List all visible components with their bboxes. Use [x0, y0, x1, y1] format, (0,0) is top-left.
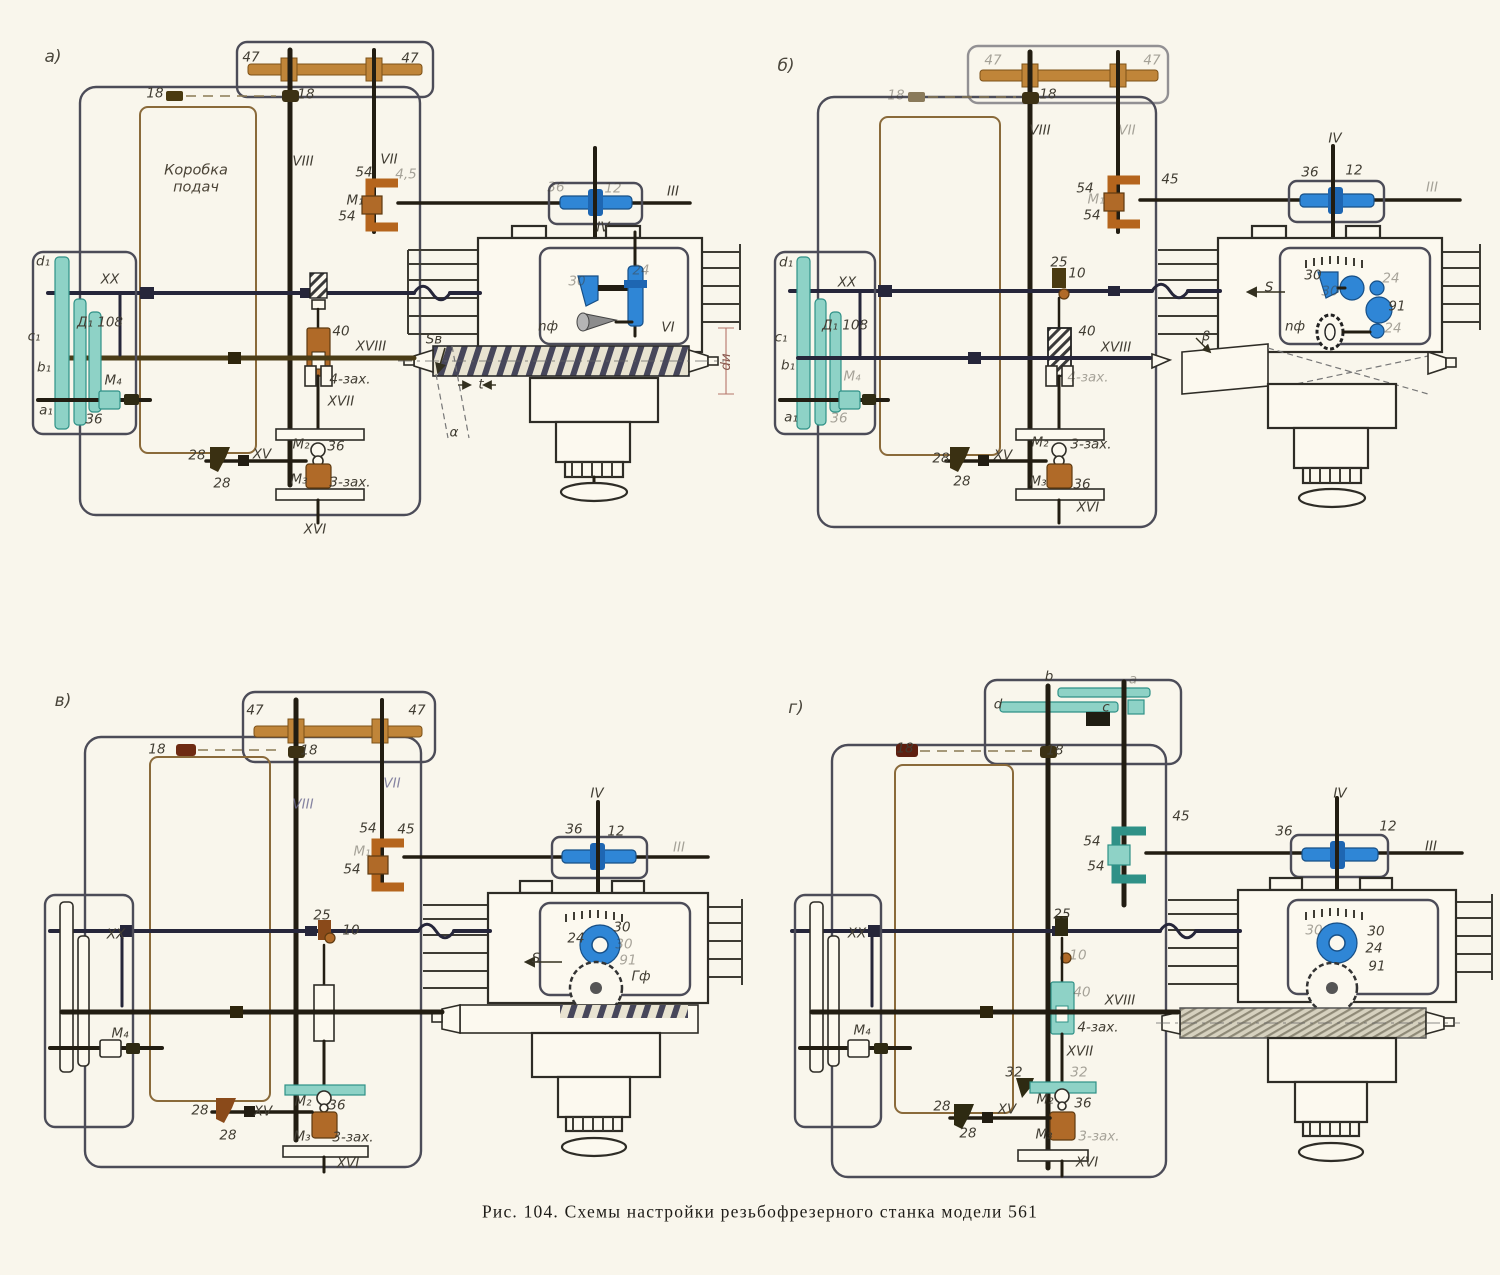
part-label: 3-зах. [1078, 1129, 1119, 1145]
part-label: VII [383, 776, 400, 792]
part-label: 30 [1367, 924, 1384, 940]
part-label: S [532, 951, 541, 967]
part-label: 36 [85, 412, 102, 428]
part-label: 10 [1068, 266, 1085, 282]
part-label: c₁ [28, 329, 41, 345]
part-label: 36 [830, 411, 847, 427]
part-label: M₄ [843, 369, 860, 385]
part-label: 28 [953, 474, 970, 490]
part-label: 24 [567, 931, 584, 947]
part-label: VIII [1029, 123, 1050, 139]
part-label: XVI [304, 522, 326, 538]
part-label: 30 [1305, 923, 1322, 939]
part-label: VIII [292, 154, 313, 170]
part-label: 32 [1070, 1065, 1087, 1081]
part-label: M₄ [111, 1026, 128, 1042]
part-label: 45 [397, 822, 414, 838]
part-label: 24 [1382, 271, 1399, 287]
part-label: M₄ [104, 373, 121, 389]
part-label: III [667, 184, 679, 200]
part-label: M₃ [1035, 1127, 1052, 1143]
part-label: M₃ [293, 1129, 310, 1145]
part-label: c [1102, 700, 1109, 716]
part-label: б) [777, 57, 794, 77]
part-label: dи [719, 353, 735, 370]
part-label: 36 [327, 439, 344, 455]
part-label: 36 [328, 1098, 345, 1114]
part-label: 36 [1275, 824, 1292, 840]
part-label: M₁ [346, 193, 363, 209]
part-label: 40 [1078, 324, 1095, 340]
part-label: XVIII [356, 339, 386, 355]
part-label: 18 [146, 86, 163, 102]
part-label: IV [596, 220, 609, 236]
part-label: 54 [338, 209, 355, 225]
part-label: 30 [613, 920, 630, 936]
part-label: M₃ [290, 472, 307, 488]
part-label: M₂ [1036, 1092, 1053, 1108]
part-label: 10 [1069, 948, 1086, 964]
part-label: VIII [292, 797, 313, 813]
part-label: XVIII [1101, 340, 1131, 356]
part-label: M₂ [1031, 435, 1048, 451]
part-label: 25 [1050, 255, 1067, 271]
part-label: M₂ [294, 1094, 311, 1110]
part-label: XX [101, 272, 120, 288]
part-label: XX [107, 927, 126, 943]
part-label: c₁ [775, 330, 788, 346]
part-label: 12 [604, 181, 621, 197]
part-label: M₃ [1029, 474, 1046, 490]
part-label: 30 [568, 274, 585, 290]
part-label: 47 [1143, 53, 1160, 69]
part-label: 28 [959, 1126, 976, 1142]
part-label: Д₁ 108 [822, 318, 868, 334]
part-label: XVIII [1105, 993, 1135, 1009]
part-label: d₁ [779, 255, 793, 271]
part-label: b₁ [781, 358, 795, 374]
part-label: M₂ [292, 437, 309, 453]
part-label: 3-зах. [1070, 437, 1111, 453]
part-label: 36 [547, 180, 564, 196]
part-label: Д₁ 108 [77, 315, 123, 331]
part-label: 18 [887, 88, 904, 104]
part-label: 47 [408, 703, 425, 719]
part-label: 54 [355, 165, 372, 181]
part-label: XV [253, 447, 271, 463]
part-label: XVI [1076, 1155, 1098, 1171]
labels-overlay: а)47471818VIIIVII4,554M₁54Коробка подачI… [0, 0, 1500, 1275]
part-label: 28 [932, 451, 949, 467]
part-label: 47 [984, 53, 1001, 69]
part-label: 4-зах. [1077, 1020, 1118, 1036]
part-label: III [1425, 839, 1437, 855]
part-label: Коробка подач [164, 163, 228, 196]
part-label: XVII [1067, 1044, 1093, 1060]
part-label: г) [788, 699, 804, 719]
part-label: 54 [1083, 834, 1100, 850]
part-label: 47 [401, 51, 418, 67]
part-label: nф [538, 319, 558, 335]
part-label: XVII [328, 394, 354, 410]
part-label: 30 [1321, 284, 1338, 300]
part-label: 40 [1073, 985, 1090, 1001]
part-label: XV [994, 448, 1012, 464]
part-label: XVI [337, 1156, 359, 1172]
part-label: 18 [297, 87, 314, 103]
part-label: a [1129, 672, 1137, 688]
part-label: 18 [148, 742, 165, 758]
part-label: M₁ [1087, 192, 1104, 208]
part-label: nф [1285, 319, 1305, 335]
part-label: d [994, 697, 1003, 713]
part-label: d₁ [36, 254, 50, 270]
part-label: 36 [1301, 165, 1318, 181]
part-label: XV [254, 1104, 272, 1120]
part-label: a₁ [39, 403, 53, 419]
part-label: 47 [242, 50, 259, 66]
part-label: 45 [1161, 172, 1178, 188]
part-label: 28 [188, 448, 205, 464]
part-label: S [1265, 280, 1274, 296]
part-label: XV [998, 1102, 1016, 1118]
part-label: 4-зах. [1067, 370, 1108, 386]
part-label: IV [590, 786, 603, 802]
part-label: 10 [342, 923, 359, 939]
part-label: 28 [213, 476, 230, 492]
part-label: a₁ [784, 410, 798, 426]
part-label: 3-зах. [329, 475, 370, 491]
part-label: 4-зах. [329, 372, 370, 388]
part-label: 24 [1384, 321, 1401, 337]
part-label: IV [1328, 131, 1341, 147]
part-label: а) [44, 48, 61, 68]
part-label: b₁ [37, 360, 51, 376]
figure-page: а)47471818VIIIVII4,554M₁54Коробка подачI… [0, 0, 1500, 1275]
part-label: α [450, 425, 459, 441]
part-label: 12 [1379, 819, 1396, 835]
part-label: 24 [632, 263, 649, 279]
part-label: 28 [219, 1128, 236, 1144]
part-label: Гф [631, 969, 650, 985]
part-label: 3-зах. [332, 1130, 373, 1146]
part-label: 54 [1083, 208, 1100, 224]
part-label: 12 [607, 824, 624, 840]
part-label: 25 [313, 908, 330, 924]
part-label: XX [838, 275, 857, 291]
part-label: XVI [1077, 500, 1099, 516]
part-label: 28 [191, 1103, 208, 1119]
part-label: 36 [1074, 1096, 1091, 1112]
part-label: 18 [896, 741, 913, 757]
part-label: 47 [246, 703, 263, 719]
part-label: M₄ [853, 1023, 870, 1039]
part-label: 40 [332, 324, 349, 340]
part-label: 54 [343, 862, 360, 878]
part-label: b [1045, 669, 1054, 685]
part-label: 25 [1053, 907, 1070, 923]
part-label: III [1426, 180, 1438, 196]
part-label: 91 [619, 953, 636, 969]
part-label: 54 [359, 821, 376, 837]
part-label: III [673, 840, 685, 856]
part-label: 28 [933, 1099, 950, 1115]
part-label: Sв [426, 332, 443, 348]
part-label: 4,5 [395, 167, 416, 183]
part-label: 91 [1368, 959, 1385, 975]
part-label: 30 [1304, 268, 1321, 284]
part-label: 18 [1046, 743, 1063, 759]
part-label: 32 [1005, 1065, 1022, 1081]
part-label: 12 [1345, 163, 1362, 179]
part-label: 18 [1039, 87, 1056, 103]
part-label: 36 [1073, 477, 1090, 493]
part-label: 91 [1388, 299, 1405, 315]
part-label: 24 [1365, 941, 1382, 957]
part-label: в) [55, 692, 72, 712]
part-label: XX [848, 926, 867, 942]
part-label: VII [1118, 123, 1135, 139]
part-label: β [1202, 329, 1211, 345]
part-label: 54 [1087, 859, 1104, 875]
part-label: VI [661, 320, 674, 336]
part-label: 30 [615, 937, 632, 953]
figure-caption: Рис. 104. Схемы настройки резьбофрезерно… [482, 1202, 1038, 1223]
part-label: M₁ [353, 844, 370, 860]
part-label: 18 [300, 743, 317, 759]
part-label: IV [1333, 786, 1346, 802]
part-label: 45 [1172, 809, 1189, 825]
part-label: 36 [565, 822, 582, 838]
part-label: t [478, 377, 483, 393]
